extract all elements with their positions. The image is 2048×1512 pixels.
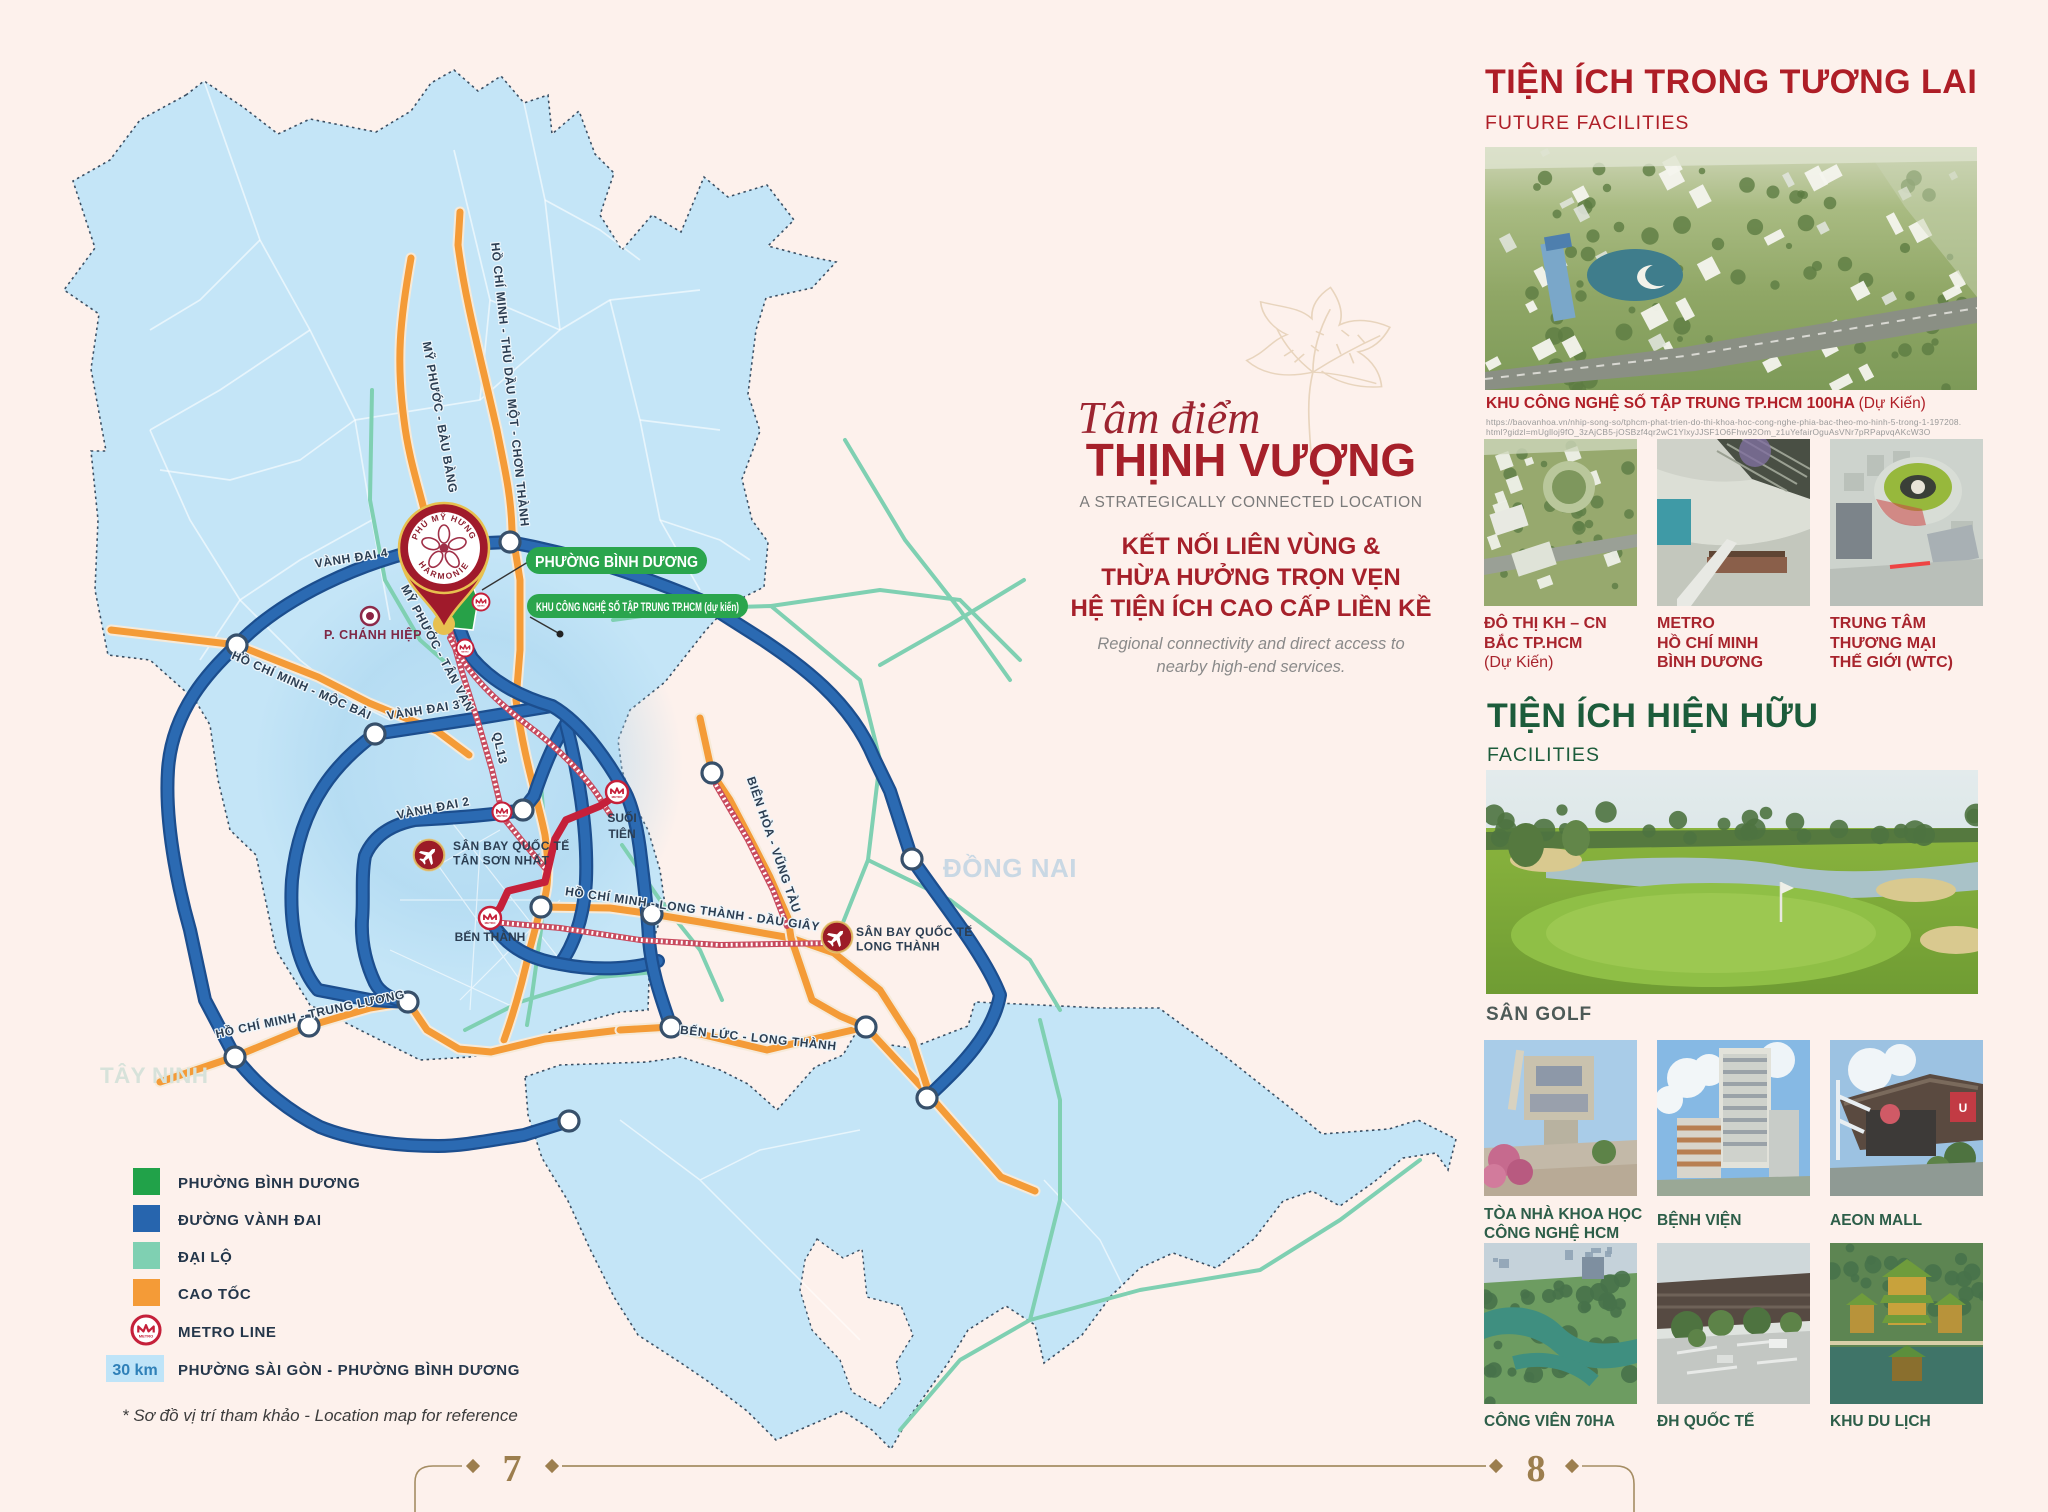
svg-text:30 km: 30 km [112,1362,157,1379]
svg-text:ĐƯỜNG VÀNH ĐAI: ĐƯỜNG VÀNH ĐAI [178,1211,322,1229]
svg-text:METRO: METRO [612,795,623,799]
svg-text:ĐỒNG NAI: ĐỒNG NAI [943,853,1077,883]
svg-text:PHƯỜNG SÀI GÒN - PHƯỜNG BÌNH D: PHƯỜNG SÀI GÒN - PHƯỜNG BÌNH DƯƠNG [178,1361,520,1379]
svg-text:CAO TỐC: CAO TỐC [178,1285,251,1303]
svg-text:LONG THÀNH: LONG THÀNH [856,939,940,954]
svg-text:TÂN SƠN NHẤT: TÂN SƠN NHẤT [453,853,550,868]
svg-text:TÂY NINH: TÂY NINH [100,1063,208,1088]
svg-text:BẾN THÀNH: BẾN THÀNH [455,929,526,944]
svg-text:METRO: METRO [477,606,485,608]
svg-text:METRO: METRO [139,1334,153,1339]
svg-text:SÂN BAY QUỐC TẾ: SÂN BAY QUỐC TẾ [856,924,973,939]
svg-text:METRO: METRO [461,652,469,654]
svg-text:PHƯỜNG BÌNH DƯƠNG: PHƯỜNG BÌNH DƯƠNG [535,552,698,571]
svg-text:SUỐI: SUỐI [607,810,636,825]
svg-text:* Sơ đồ vị trí tham khảo - Loc: * Sơ đồ vị trí tham khảo - Location map … [122,1406,518,1425]
svg-text:METRO LINE: METRO LINE [178,1324,277,1341]
svg-text:METRO: METRO [497,814,508,818]
svg-text:7: 7 [503,1448,522,1490]
svg-text:8: 8 [1527,1448,1546,1490]
svg-text:PHƯỜNG BÌNH DƯƠNG: PHƯỜNG BÌNH DƯƠNG [178,1174,360,1192]
svg-text:SÂN BAY QUỐC TẾ: SÂN BAY QUỐC TẾ [453,838,570,853]
svg-text:TIÊN: TIÊN [608,826,635,841]
svg-text:U: U [1959,1101,1968,1115]
svg-text:METRO: METRO [485,921,496,925]
svg-text:KHU CÔNG NGHỆ SỐ TẬP TRUNG TP.: KHU CÔNG NGHỆ SỐ TẬP TRUNG TP.HCM (dự ki… [536,600,739,614]
svg-text:P. CHÁNH HIỆP: P. CHÁNH HIỆP [324,627,422,642]
svg-text:ĐẠI LỘ: ĐẠI LỘ [178,1248,232,1266]
